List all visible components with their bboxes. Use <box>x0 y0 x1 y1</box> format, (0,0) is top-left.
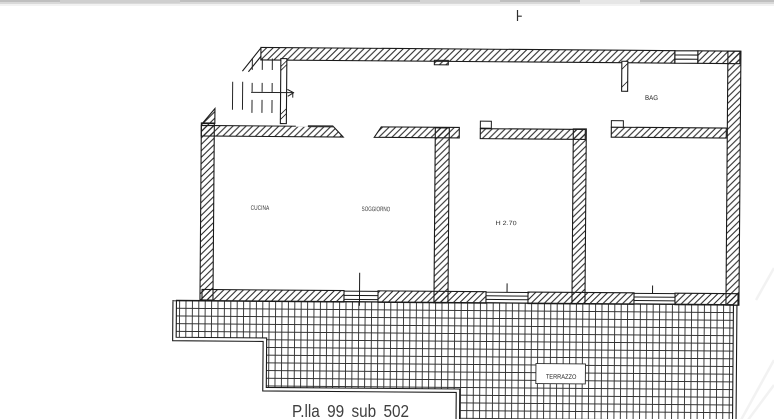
svg-text:SOGGIORNO: SOGGIORNO <box>362 206 391 213</box>
svg-text:H 2.70: H 2.70 <box>496 220 518 227</box>
svg-text:BAG: BAG <box>645 95 658 102</box>
svg-text:CUCINA: CUCINA <box>251 205 270 212</box>
svg-text:P.lla 99 sub 502: P.lla 99 sub 502 <box>292 401 409 419</box>
svg-text:TERRAZZO: TERRAZZO <box>546 374 577 381</box>
